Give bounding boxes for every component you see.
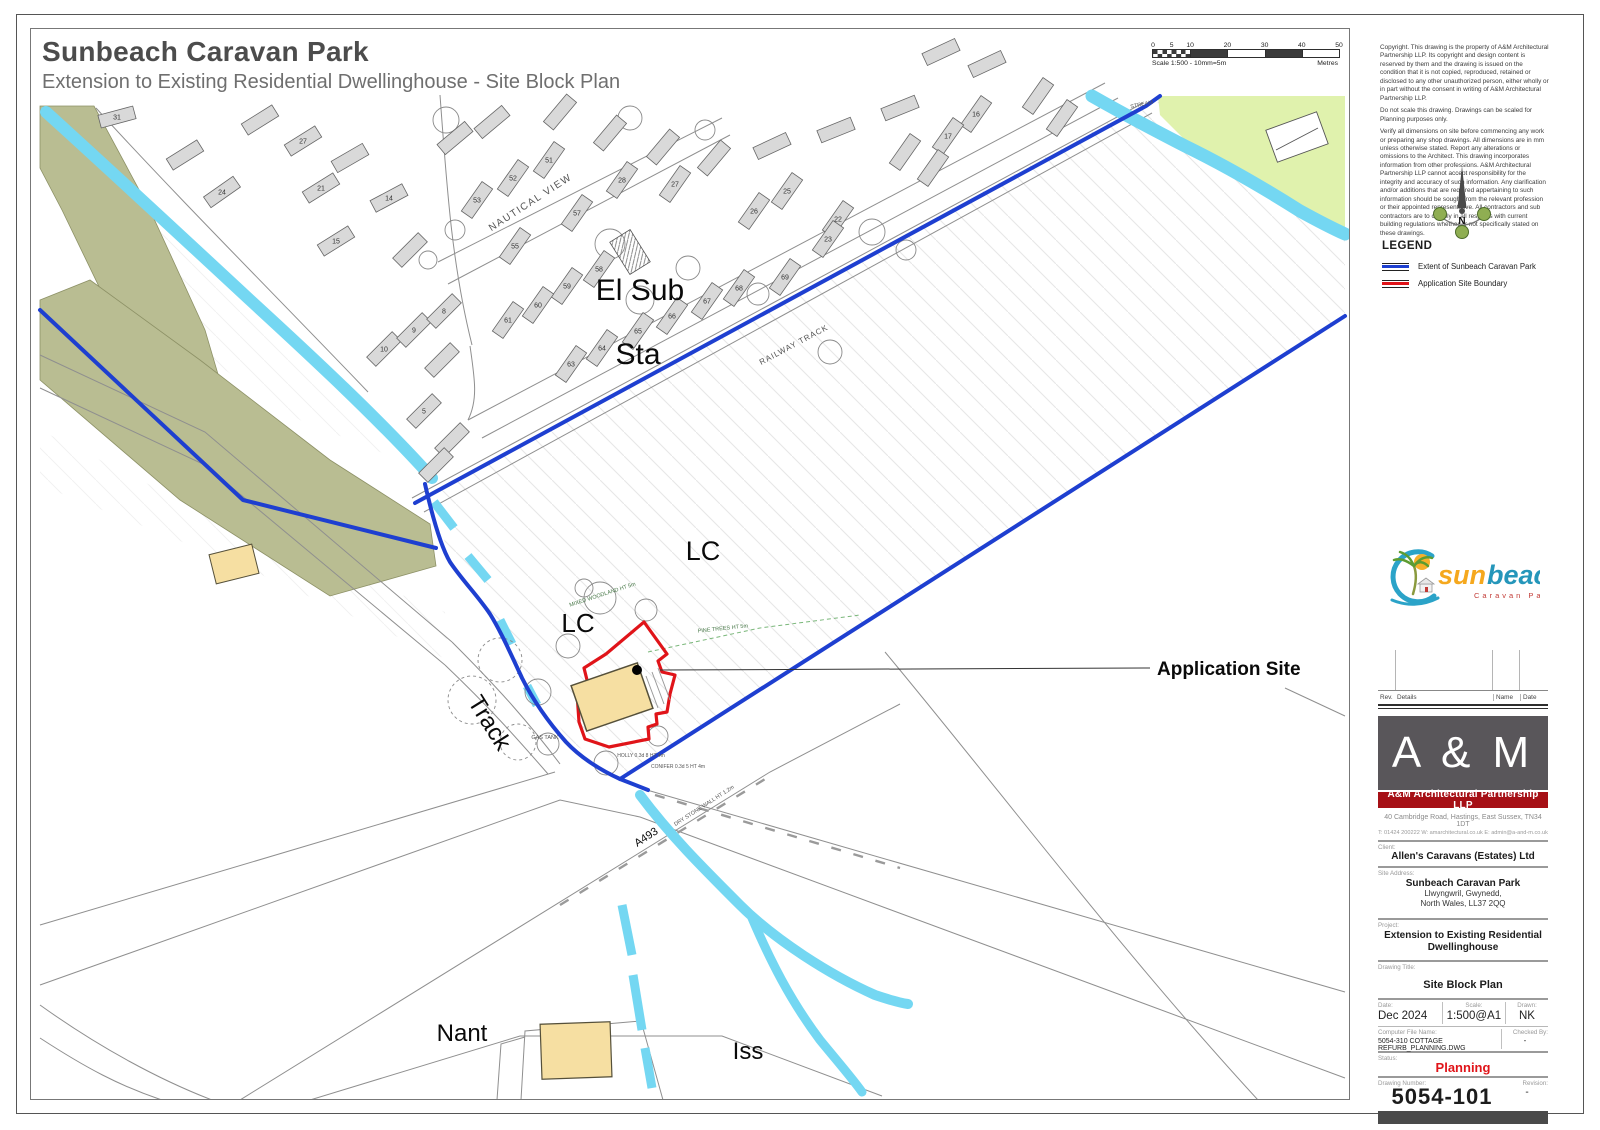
site-address-label: Site Address: [1378,870,1548,877]
legend-swatch [1382,263,1409,271]
scale-value: 1:500@A1 [1443,1010,1505,1022]
legend: LEGEND Extent of Sunbeach Caravan ParkAp… [1382,240,1544,296]
rev-header-rev: Rev. [1378,694,1395,701]
scale-tick: 5 [1170,42,1174,49]
scale-bar: 051020304050 Scale 1:500 - 10mm=5m Metre… [1152,40,1344,67]
firm-logo-box: A & M [1378,716,1548,790]
drawn-label: Drawn: [1506,1002,1548,1009]
legend-label: Application Site Boundary [1418,279,1507,288]
date-label: Date: [1378,1002,1442,1009]
scale-bar-ticks: 051020304050 [1152,40,1344,49]
drawing-sheet: { "page": { "title": "Sunbeach Caravan P… [0,0,1600,1130]
legend-swatch [1382,280,1409,288]
scale-label: Scale: [1443,1002,1505,1009]
legend-item: Extent of Sunbeach Caravan Park [1382,262,1544,271]
site-line2: Llwyngwril, Gwynedd, [1378,889,1548,899]
legend-item: Application Site Boundary [1382,279,1544,288]
note-paragraph: Copyright. This drawing is the property … [1380,44,1550,103]
scale-tick: 50 [1335,42,1343,49]
client-label: Client: [1378,844,1548,851]
scale-tick: 0 [1151,42,1155,49]
checked-value: - [1502,1036,1548,1045]
logo-tagline: Caravan Park [1474,591,1540,600]
client-value: Allen's Caravans (Estates) Ltd [1378,851,1548,862]
title-block-panel: Copyright. This drawing is the property … [1352,28,1548,1100]
revision-table: Rev. Details Name Date [1378,648,1548,709]
file-value: 5054-310 COTTAGE REFURB_PLANNING.DWG [1378,1038,1501,1052]
rev-header-name: Name [1493,694,1520,701]
north-arrow-icon: N [1430,164,1494,245]
footer-bar [1378,1111,1548,1124]
date-value: Dec 2024 [1378,1010,1442,1022]
scale-tick: 30 [1261,42,1269,49]
note-paragraph: Do not scale this drawing. Drawings can … [1380,107,1550,124]
drawing-number-value: 5054-101 [1378,1084,1506,1110]
title-block-fields: Client: Allen's Caravans (Estates) Ltd S… [1378,838,1548,1124]
legend-label: Extent of Sunbeach Caravan Park [1418,262,1536,271]
project-label: Project: [1378,922,1548,929]
project-value: Extension to Existing Residential Dwelli… [1378,930,1548,954]
scale-bar-checker [1153,50,1190,57]
drawing-title-value: Site Block Plan [1378,979,1548,991]
scale-caption: Scale 1:500 - 10mm=5m [1152,60,1226,67]
north-letter: N [1458,216,1465,227]
status-value: Planning [1378,1060,1548,1075]
logo-sun-text: sun [1438,560,1486,590]
page-subtitle: Extension to Existing Residential Dwelli… [42,71,620,94]
page-title: Sunbeach Caravan Park [42,36,620,68]
scale-tick: 20 [1224,42,1232,49]
logo-beach-text: beach [1487,560,1540,590]
firm-name-bar: A&M Architectural Partnership LLP [1378,792,1548,808]
svg-text:sunbeach: sunbeach [1438,560,1540,590]
logo-house-icon [1418,578,1434,592]
revision-label: Revision: [1506,1080,1548,1087]
map-border [30,28,1350,1100]
legend-items: Extent of Sunbeach Caravan ParkApplicati… [1382,262,1544,288]
drawing-title-label: Drawing Title: [1378,964,1548,971]
scale-tick: 40 [1298,42,1306,49]
sunbeach-logo: sunbeach Caravan Park [1380,544,1540,615]
scale-tick: 10 [1186,42,1194,49]
drawn-value: NK [1506,1010,1548,1022]
firm-identity: A & M A&M Architectural Partnership LLP … [1378,716,1548,836]
scale-bar-graphic [1152,49,1340,58]
site-name: Sunbeach Caravan Park [1378,878,1548,889]
firm-address: 40 Cambridge Road, Hastings, East Sussex… [1378,814,1548,828]
site-line3: North Wales, LL37 2QQ [1378,899,1548,909]
title-block-header: Sunbeach Caravan Park Extension to Exist… [42,36,620,94]
firm-initials: A & M [1392,728,1534,778]
file-label: Computer File Name: [1378,1029,1501,1036]
legend-title: LEGEND [1382,240,1544,252]
checked-label: Checked By: [1502,1029,1548,1036]
scale-unit: Metres [1317,60,1338,67]
rev-header-details: Details [1395,694,1493,701]
revision-value: - [1506,1087,1548,1098]
firm-contact: T: 01424 200222 W: amarchitectural.co.uk… [1378,830,1548,836]
rev-header-date: Date [1520,694,1548,701]
